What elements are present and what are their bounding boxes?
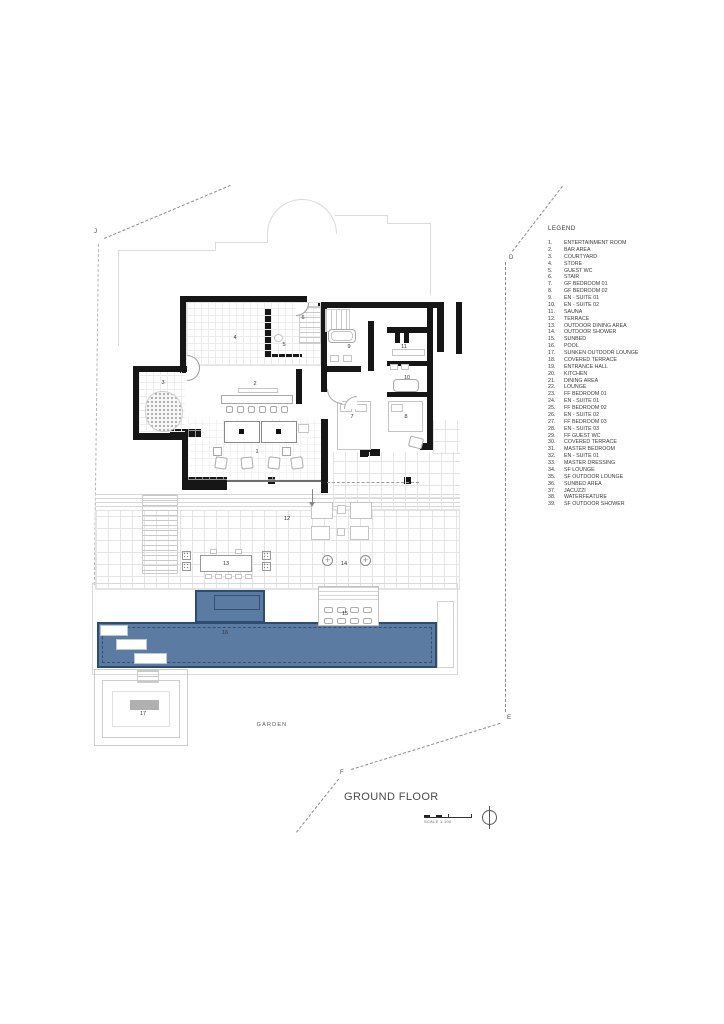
legend-item: 4. STORE (548, 261, 678, 268)
garden-steps (142, 494, 178, 574)
legend-item: 24. EN - SUITE 01 (548, 398, 678, 405)
legend-item-label: EN - SUITE 01 (564, 295, 678, 302)
sunbed (324, 618, 333, 624)
sunken-lounge-steps (137, 670, 159, 683)
legend-item-label: GUEST WC (564, 268, 678, 275)
site-outline-segment (267, 233, 268, 243)
terrace-sofa (350, 502, 372, 519)
bar-counter (221, 395, 293, 404)
room-number: 7 (350, 414, 353, 420)
page-title: GROUND FLOOR (344, 791, 439, 803)
legend-item-label: FF BEDROOM 01 (564, 391, 678, 398)
glass-wall (227, 480, 321, 482)
legend-item-label: FF BEDROOM 02 (564, 405, 678, 412)
legend-item: 26. EN - SUITE 02 (548, 412, 678, 419)
room-number: 17 (140, 711, 146, 717)
section-arrow (312, 489, 313, 502)
legend-item-number: 12. (548, 316, 564, 323)
legend-item-label: FF BEDROOM 03 (564, 419, 678, 426)
pool-step (100, 625, 128, 636)
legend-item-number: 4. (548, 261, 564, 268)
legend-item: 37. JACUZZI (548, 488, 678, 495)
legend-item-number: 29. (548, 433, 564, 440)
legend-item-label: JACUZZI (564, 488, 678, 495)
room-number: 14 (341, 561, 347, 567)
legend-item-label: GF BEDROOM 02 (564, 288, 678, 295)
bathtub-inner (331, 331, 353, 341)
legend-item-number: 10. (548, 302, 564, 309)
dining-chair (205, 574, 212, 579)
legend-item: 23. FF BEDROOM 01 (548, 391, 678, 398)
site-outline-segment (387, 223, 431, 224)
room-number: 12 (284, 516, 290, 522)
dining-chair (235, 574, 242, 579)
legend-item: 8. GF BEDROOM 02 (548, 288, 678, 295)
legend-item: 29. FF GUEST WC (548, 433, 678, 440)
dining-chair (235, 549, 242, 554)
legend-item-number: 14. (548, 329, 564, 336)
legend-item-number: 9. (548, 295, 564, 302)
sunbed (363, 607, 372, 613)
bar-stool (259, 406, 266, 413)
room-number: 4 (233, 335, 236, 341)
legend-list: 1. ENTERTAINMENT ROOM 2. BAR AREA 3. COU… (548, 240, 678, 508)
legend-item: 39. SF OUTDOOR SHOWER (548, 501, 678, 508)
site-outline-segment (335, 215, 387, 216)
terrace-grid-corner (433, 420, 460, 454)
legend-item-number: 21. (548, 378, 564, 385)
legend-item-label: SUNBED (564, 336, 678, 343)
legend-item-number: 1. (548, 240, 564, 247)
site-outline-segment (118, 250, 215, 251)
legend-item-number: 34. (548, 467, 564, 474)
legend-title: LEGEND (548, 226, 678, 232)
sunbed (350, 618, 359, 624)
pool-step (134, 653, 167, 664)
legend-item-label: MASTER DRESSING (564, 460, 678, 467)
legend-item-number: 36. (548, 481, 564, 488)
scale-bar-tick (471, 814, 472, 818)
planter (182, 551, 191, 560)
legend-item-number: 17. (548, 350, 564, 357)
legend-item-label: EN - SUITE 02 (564, 412, 678, 419)
sunbed (324, 607, 333, 613)
legend-item-label: SF OUTDOOR LOUNGE (564, 474, 678, 481)
legend-item-number: 25. (548, 405, 564, 412)
boundary-marker: J (94, 229, 97, 235)
room-number: 5 (282, 342, 285, 348)
floor-plan-sheet: + + 1234567891011121314151617 JDEF GARDE… (0, 0, 724, 1024)
bar-stool (281, 406, 288, 413)
wall-segment (296, 369, 302, 404)
wc-fixture (330, 355, 339, 362)
boundary-dash-segment (505, 262, 506, 712)
legend-item: 20. KITCHEN (548, 371, 678, 378)
wc-fixture (390, 364, 398, 370)
planter (182, 562, 191, 571)
legend-item-label: EN - SUITE 03 (564, 426, 678, 433)
legend-item-number: 22. (548, 384, 564, 391)
legend-item-number: 5. (548, 268, 564, 275)
room-number: 15 (342, 611, 348, 617)
room-number: 16 (222, 630, 228, 636)
legend-item-number: 20. (548, 371, 564, 378)
legend-item-number: 3. (548, 254, 564, 261)
room-number: 10 (404, 375, 410, 381)
legend-item-number: 26. (548, 412, 564, 419)
site-outline-segment (118, 250, 119, 346)
room-number: 6 (301, 315, 304, 321)
wall-segment (404, 327, 409, 343)
legend-item-label: COVERED TERRACE (564, 357, 678, 364)
site-outline-arc (267, 199, 337, 234)
bar-stool (270, 406, 277, 413)
pool-step (116, 639, 147, 650)
sliding-door (327, 482, 419, 483)
terrace-chair (350, 526, 369, 540)
legend-item-label: EN - SUITE 01 (564, 398, 678, 405)
side-cabinet (298, 424, 309, 433)
legend-item-number: 13. (548, 323, 564, 330)
legend-item: 38. WATERFEATURE (548, 494, 678, 501)
wall-segment (387, 392, 428, 397)
legend-item: 5. GUEST WC (548, 268, 678, 275)
legend-item-label: COURTYARD (564, 254, 678, 261)
terrace-table (337, 505, 346, 514)
legend-item: 30. COVERED TERRACE (548, 439, 678, 446)
legend-item: 9. EN - SUITE 01 (548, 295, 678, 302)
sunbed (363, 618, 372, 624)
legend-item-number: 35. (548, 474, 564, 481)
bar-stool (237, 406, 244, 413)
legend-item-number: 19. (548, 364, 564, 371)
planter (262, 562, 271, 571)
shower-icon: + (322, 555, 333, 566)
legend-item: 33. MASTER DRESSING (548, 460, 678, 467)
legend-item-label: WATERFEATURE (564, 494, 678, 501)
room-number: 8 (404, 414, 407, 420)
legend-item-label: COVERED TERRACE (564, 439, 678, 446)
planter (262, 551, 271, 560)
lounge-chair (214, 456, 228, 470)
legend-item-label: SUNKEN OUTDOOR LOUNGE (564, 350, 678, 357)
legend-item-number: 16. (548, 343, 564, 350)
sunbed (337, 618, 346, 624)
basin-fixture (343, 355, 352, 362)
legend-item-number: 8. (548, 288, 564, 295)
lounge-chair (267, 456, 280, 469)
boundary-dash-segment (104, 185, 231, 239)
legend-item-number: 28. (548, 426, 564, 433)
legend-item: 10. EN - SUITE 02 (548, 302, 678, 309)
legend-item-label: ENTRANCE HALL (564, 364, 678, 371)
wall-segment (318, 302, 444, 308)
room-number: 2 (253, 381, 256, 387)
legend-item: 6. STAIR (548, 274, 678, 281)
legend-item-number: 38. (548, 494, 564, 501)
legend-item-label: ENTERTAINMENT ROOM (564, 240, 678, 247)
bedroom-chair (408, 435, 424, 449)
pool-shallow-section (195, 590, 265, 623)
shower-icon: + (360, 555, 371, 566)
legend-item-number: 18. (548, 357, 564, 364)
legend-panel: LEGEND 1. ENTERTAINMENT ROOM 2. BAR AREA… (548, 226, 678, 508)
legend-item-label: DINING AREA (564, 378, 678, 385)
legend-item-label: TERRACE (564, 316, 678, 323)
garden-label: GARDEN (240, 722, 304, 728)
legend-item: 19. ENTRANCE HALL (548, 364, 678, 371)
dining-chair (215, 574, 222, 579)
legend-item: 17. SUNKEN OUTDOOR LOUNGE (548, 350, 678, 357)
legend-item: 22. LOUNGE (548, 384, 678, 391)
legend-item-label: POOL (564, 343, 678, 350)
scale-bar-tick (448, 814, 449, 818)
legend-item-label: SUNBED AREA (564, 481, 678, 488)
lounge-chair (240, 456, 253, 469)
legend-item-number: 39. (548, 501, 564, 508)
sunbed-platform (318, 586, 379, 626)
legend-item: 31. MASTER BEDROOM (548, 446, 678, 453)
legend-item-number: 7. (548, 281, 564, 288)
boundary-marker: E (507, 715, 511, 721)
pillow (391, 404, 403, 412)
side-table (282, 447, 291, 456)
section-arrow-head (309, 502, 315, 507)
legend-item-label: SAUNA (564, 309, 678, 316)
room-number: 9 (347, 344, 350, 350)
pool-lane-lines (214, 595, 260, 610)
guest-wc-fixture (274, 334, 283, 342)
legend-item: 16. POOL (548, 343, 678, 350)
legend-item-number: 6. (548, 274, 564, 281)
boundary-marker: F (340, 770, 344, 776)
wall-segment (395, 327, 400, 343)
legend-item: 11. SAUNA (548, 309, 678, 316)
legend-item-number: 27. (548, 419, 564, 426)
site-outline-segment (215, 242, 267, 243)
pool-table-dot (239, 429, 244, 434)
side-table (213, 447, 222, 456)
legend-item-label: KITCHEN (564, 371, 678, 378)
boundary-dash-segment (351, 723, 500, 770)
legend-item-label: SF OUTDOOR SHOWER (564, 501, 678, 508)
legend-item: 35. SF OUTDOOR LOUNGE (548, 474, 678, 481)
legend-item: 34. SF LOUNGE (548, 467, 678, 474)
legend-item-label: BAR AREA (564, 247, 678, 254)
legend-item-number: 2. (548, 247, 564, 254)
site-outline-segment (215, 242, 216, 251)
legend-item-number: 30. (548, 439, 564, 446)
platform-decking (319, 587, 378, 602)
room-number: 11 (401, 344, 407, 350)
legend-item: 7. GF BEDROOM 01 (548, 281, 678, 288)
legend-item-number: 37. (548, 488, 564, 495)
north-arrow-line (489, 806, 490, 829)
basin-fixture (401, 364, 409, 370)
legend-item: 3. COURTYARD (548, 254, 678, 261)
legend-item: 14. OUTDOOR SHOWER (548, 329, 678, 336)
sunken-lounge-table (130, 700, 159, 710)
legend-item-number: 33. (548, 460, 564, 467)
pool-side-deck (437, 601, 454, 668)
legend-item: 2. BAR AREA (548, 247, 678, 254)
door-arc (327, 389, 342, 404)
legend-item: 27. FF BEDROOM 03 (548, 419, 678, 426)
legend-item-label: EN - SUITE 02 (564, 302, 678, 309)
sauna-bench (392, 349, 425, 356)
boundary-marker: D (509, 255, 513, 261)
legend-item: 18. COVERED TERRACE (548, 357, 678, 364)
dining-chair (225, 574, 232, 579)
legend-item-label: STORE (564, 261, 678, 268)
legend-item: 32. EN - SUITE 01 (548, 453, 678, 460)
legend-item-number: 11. (548, 309, 564, 316)
dining-chair (245, 574, 252, 579)
legend-item-number: 23. (548, 391, 564, 398)
bar-shelf (238, 388, 278, 393)
legend-item: 25. FF BEDROOM 02 (548, 405, 678, 412)
site-outline-segment (387, 215, 388, 223)
legend-item-label: OUTDOOR SHOWER (564, 329, 678, 336)
courtyard-plant (145, 391, 183, 432)
bar-stool (226, 406, 233, 413)
legend-item-label: GF BEDROOM 01 (564, 281, 678, 288)
bar-stool (248, 406, 255, 413)
scale-label: SCALE 1:100 (424, 819, 452, 824)
lounge-chair (290, 456, 304, 470)
legend-item: 12. TERRACE (548, 316, 678, 323)
room-number: 13 (223, 561, 229, 567)
site-outline-segment (430, 223, 431, 295)
legend-item-label: OUTDOOR DINING AREA (564, 323, 678, 330)
dining-chair (210, 549, 217, 554)
room-number: 1 (255, 449, 258, 455)
terrace-chair (311, 526, 330, 540)
legend-item-label: MASTER BEDROOM (564, 446, 678, 453)
legend-item: 15. SUNBED (548, 336, 678, 343)
boundary-dash-segment (296, 779, 339, 833)
door-arc (344, 396, 357, 409)
legend-item: 21. DINING AREA (548, 378, 678, 385)
legend-item-label: STAIR (564, 274, 678, 281)
legend-item-label: FF GUEST WC (564, 433, 678, 440)
wall-segment (368, 321, 374, 371)
legend-item-number: 32. (548, 453, 564, 460)
legend-item: 28. EN - SUITE 03 (548, 426, 678, 433)
legend-item-label: EN - SUITE 01 (564, 453, 678, 460)
legend-item: 13. OUTDOOR DINING AREA (548, 323, 678, 330)
legend-item-label: LOUNGE (564, 384, 678, 391)
wall-segment (456, 302, 462, 354)
legend-item: 36. SUNBED AREA (548, 481, 678, 488)
legend-item-number: 31. (548, 446, 564, 453)
wall-segment (437, 302, 444, 352)
room-number: 3 (161, 380, 164, 386)
legend-item: 1. ENTERTAINMENT ROOM (548, 240, 678, 247)
sunbed (350, 607, 359, 613)
wall-segment (323, 366, 361, 372)
legend-item-label: SF LOUNGE (564, 467, 678, 474)
terrace-table (337, 528, 345, 536)
pool-table-dot (276, 429, 281, 434)
legend-item-number: 24. (548, 398, 564, 405)
legend-item-number: 15. (548, 336, 564, 343)
